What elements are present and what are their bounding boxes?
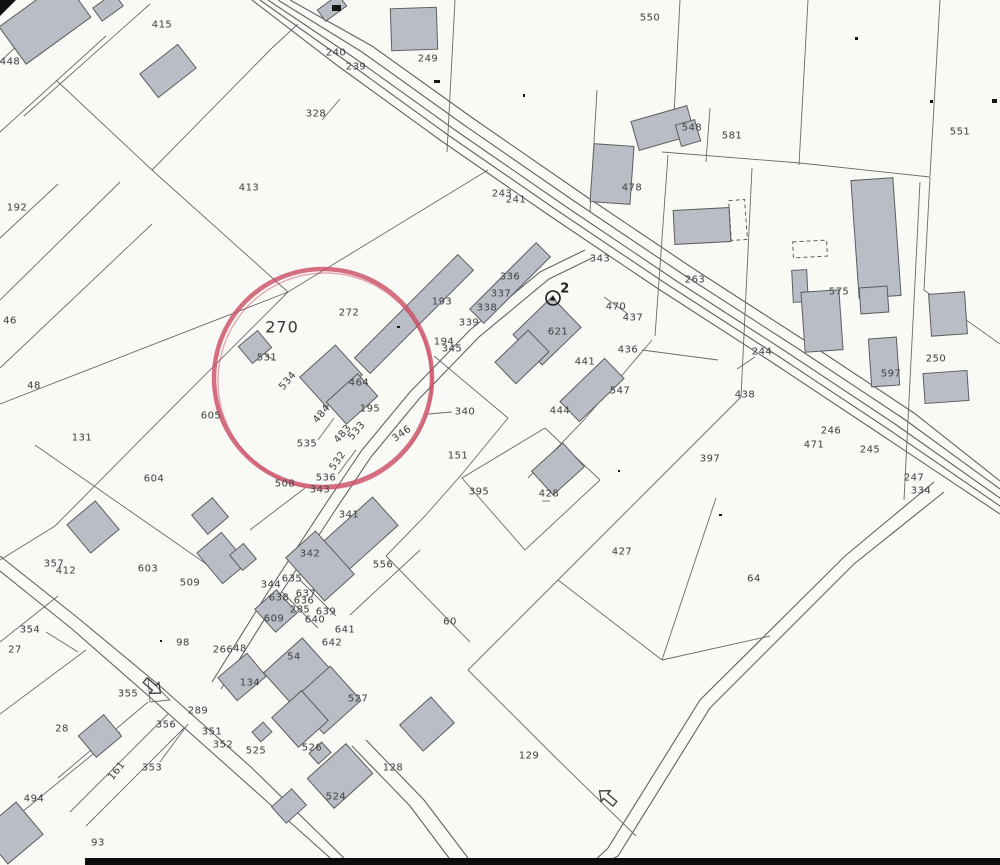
- parcel-label-470: 470: [606, 302, 627, 313]
- parcel-label-531: 531: [257, 353, 278, 364]
- parcel-label-437: 437: [623, 313, 644, 324]
- parcel-label-27: 27: [8, 645, 22, 656]
- parcel-label-581: 581: [722, 131, 743, 142]
- parcel-label-527: 527: [348, 694, 369, 705]
- parcel-label-328: 328: [306, 109, 327, 120]
- parcel-label-441: 441: [575, 357, 596, 368]
- parcel-label-345: 345: [442, 344, 463, 355]
- parcel-label-134: 134: [240, 678, 261, 689]
- parcel-label-471: 471: [804, 440, 825, 451]
- parcel-label-609: 609: [264, 614, 285, 625]
- parcel-label-641: 641: [335, 625, 356, 636]
- parcel-label-338: 338: [477, 303, 498, 314]
- parcel-label-337: 337: [491, 289, 512, 300]
- parcel-label-355: 355: [118, 689, 139, 700]
- parcel-label-246: 246: [821, 426, 842, 437]
- parcel-label-241: 241: [506, 195, 527, 206]
- parcel-label-525: 525: [246, 746, 267, 757]
- parcel-label-151: 151: [448, 451, 469, 462]
- parcel-label-536: 536: [316, 473, 337, 484]
- parcel-label-340: 340: [455, 407, 476, 418]
- parcel-label-343: 343: [590, 254, 611, 265]
- parcel-label-341: 341: [339, 510, 360, 521]
- parcel-label-635: 635: [282, 574, 303, 585]
- parcel-label-60: 60: [443, 617, 457, 628]
- parcel-label-342: 342: [300, 549, 321, 560]
- parcel-label-509: 509: [180, 578, 201, 589]
- parcel-label-344: 344: [261, 580, 282, 591]
- parcel-label-54: 54: [287, 652, 301, 663]
- parcel-label-351: 351: [202, 727, 223, 738]
- parcel-label-98: 98: [176, 638, 190, 649]
- parcel-label-436: 436: [618, 345, 639, 356]
- parcel-label-526: 526: [302, 743, 323, 754]
- parcel-label-270: 270: [265, 318, 299, 337]
- parcel-label-427: 427: [612, 547, 633, 558]
- parcel-label-640: 640: [305, 615, 326, 626]
- parcel-label-244: 244: [752, 347, 773, 358]
- parcel-label-438: 438: [735, 390, 756, 401]
- parcel-label-layer: 4484152402393284131922495502432414785485…: [0, 0, 1000, 865]
- parcel-label-534: 534: [277, 370, 299, 393]
- parcel-label-239: 239: [346, 62, 367, 73]
- parcel-label-46: 46: [3, 316, 17, 327]
- parcel-label-412: 412: [56, 566, 77, 577]
- parcel-label-334: 334: [911, 486, 932, 497]
- parcel-label-597: 597: [881, 369, 902, 380]
- parcel-label-444: 444: [550, 406, 571, 417]
- parcel-label-604: 604: [144, 474, 165, 485]
- parcel-label-356: 356: [156, 720, 177, 731]
- map-sheet: 4484152402393284131922495502432414785485…: [0, 0, 1000, 865]
- parcel-label-532: 532: [328, 449, 349, 472]
- parcel-label-413: 413: [239, 183, 260, 194]
- parcel-label-28: 28: [55, 724, 69, 735]
- parcel-label-621: 621: [548, 327, 569, 338]
- parcel-label-289: 289: [188, 706, 209, 717]
- parcel-label-547: 547: [610, 386, 631, 397]
- parcel-label-603: 603: [138, 564, 159, 575]
- parcel-label-533: 533: [346, 420, 368, 443]
- parcel-label-266: 266: [213, 645, 234, 656]
- parcel-label-428: 428: [539, 489, 560, 500]
- parcel-label-535: 535: [297, 439, 318, 450]
- parcel-label-48: 48: [27, 381, 41, 392]
- parcel-label-128: 128: [383, 763, 404, 774]
- parcel-label-395: 395: [469, 487, 490, 498]
- parcel-label-638: 638: [269, 593, 290, 604]
- parcel-label-193: 193: [432, 297, 453, 308]
- parcel-label-484: 484: [311, 403, 333, 426]
- parcel-label-129: 129: [519, 751, 540, 762]
- parcel-label-343: 343: [310, 485, 331, 496]
- parcel-label-249: 249: [418, 54, 439, 65]
- parcel-label-464: 464: [349, 378, 370, 389]
- parcel-label-195: 195: [360, 404, 381, 415]
- parcel-label-272: 272: [339, 308, 360, 319]
- parcel-label-64: 64: [747, 574, 761, 585]
- parcel-label-556: 556: [373, 560, 394, 571]
- parcel-label-263: 263: [685, 275, 706, 286]
- parcel-label-415: 415: [152, 20, 173, 31]
- parcel-label-575: 575: [829, 287, 850, 298]
- parcel-label-336: 336: [500, 272, 521, 283]
- parcel-label-247: 247: [904, 473, 925, 484]
- parcel-label-192: 192: [7, 203, 28, 214]
- parcel-label-131: 131: [72, 433, 93, 444]
- parcel-label-642: 642: [322, 638, 343, 649]
- parcel-label-550: 550: [640, 13, 661, 24]
- parcel-label-346: 346: [390, 424, 413, 445]
- parcel-label-2: 2: [560, 282, 570, 297]
- parcel-label-548: 548: [682, 123, 703, 134]
- parcel-label-339: 339: [459, 318, 480, 329]
- parcel-label-605: 605: [201, 411, 222, 422]
- parcel-label-250: 250: [926, 354, 947, 365]
- parcel-label-397: 397: [700, 454, 721, 465]
- parcel-label-245: 245: [860, 445, 881, 456]
- parcel-label-93: 93: [91, 838, 105, 849]
- parcel-label-240: 240: [326, 48, 347, 59]
- parcel-label-448: 448: [0, 57, 20, 68]
- parcel-label-353: 353: [142, 763, 163, 774]
- parcel-label-48: 48: [233, 644, 247, 655]
- parcel-label-161: 161: [106, 759, 127, 782]
- parcel-label-508: 508: [275, 479, 296, 490]
- parcel-label-354: 354: [20, 625, 41, 636]
- parcel-label-551: 551: [950, 127, 971, 138]
- parcel-label-524: 524: [326, 792, 347, 803]
- parcel-label-478: 478: [622, 183, 643, 194]
- parcel-label-494: 494: [24, 794, 45, 805]
- parcel-label-352: 352: [213, 740, 234, 751]
